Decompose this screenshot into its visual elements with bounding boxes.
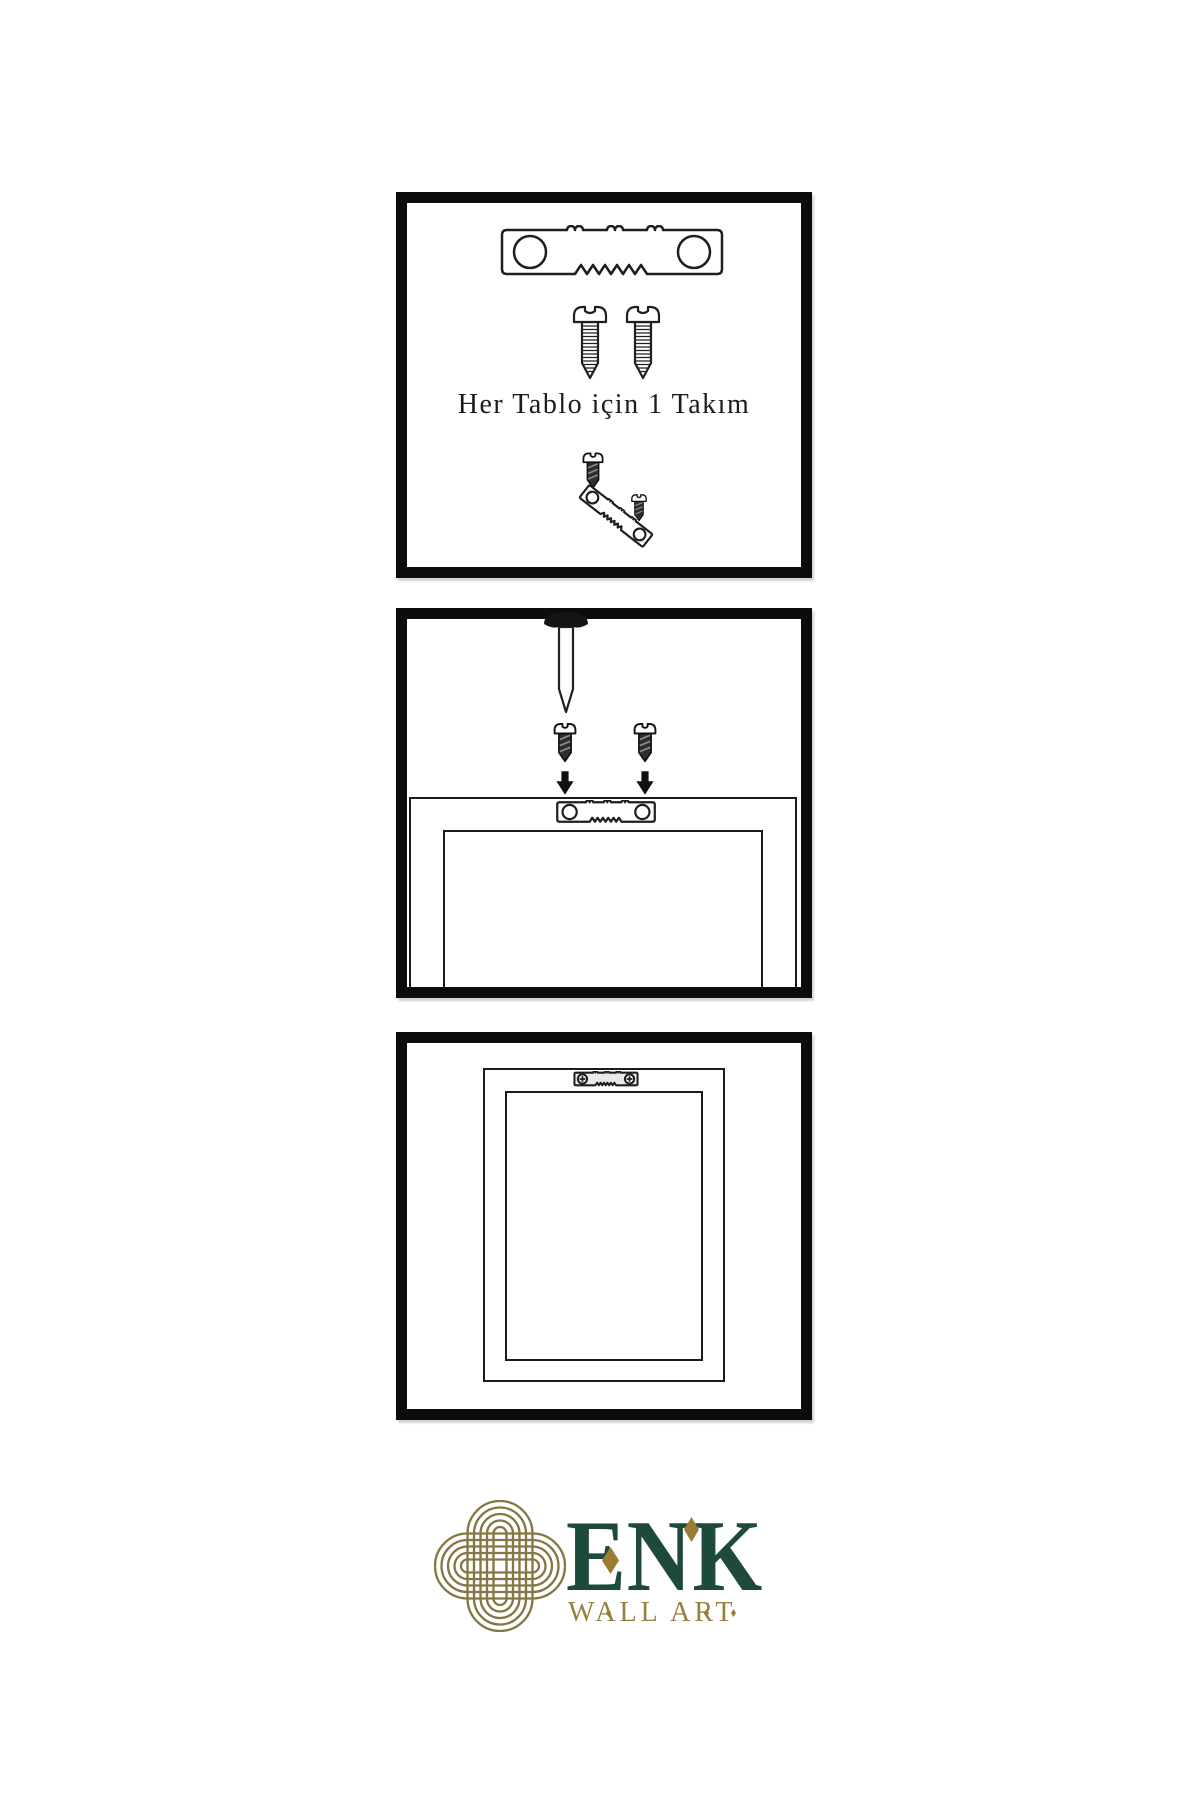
step-3-panel <box>396 1032 812 1420</box>
screw-icon <box>623 303 663 381</box>
step-1-content: Her Tablo için 1 Takım <box>407 203 801 567</box>
interlaced-knot-icon <box>434 1500 566 1632</box>
hanger-assembly-icon <box>578 448 658 554</box>
kit-caption: Her Tablo için 1 Takım <box>407 389 801 421</box>
down-arrow-icon <box>636 771 654 795</box>
brand-wordmark: ENK <box>566 1506 763 1608</box>
brand-tagline: WALL ART <box>568 1597 737 1629</box>
frame-back-inner-outline <box>443 830 763 987</box>
instruction-sheet: Her Tablo için 1 Takım <box>0 0 1200 1800</box>
dark-screw-icon <box>630 493 648 523</box>
dark-screw-icon <box>552 721 578 765</box>
sawtooth-hanger-icon <box>497 225 727 279</box>
step-1-panel: Her Tablo için 1 Takım <box>396 192 812 578</box>
down-arrow-icon <box>556 771 574 795</box>
step-2-panel <box>396 608 812 998</box>
nail-icon <box>543 611 589 721</box>
mounted-sawtooth-hanger-icon <box>573 1071 639 1087</box>
step-3-content <box>407 1043 801 1409</box>
frame-inner-outline <box>505 1091 703 1361</box>
screw-icon <box>570 303 610 381</box>
dark-screw-icon <box>632 721 658 765</box>
step-2-content <box>407 619 801 987</box>
sawtooth-hanger-icon <box>555 800 657 824</box>
